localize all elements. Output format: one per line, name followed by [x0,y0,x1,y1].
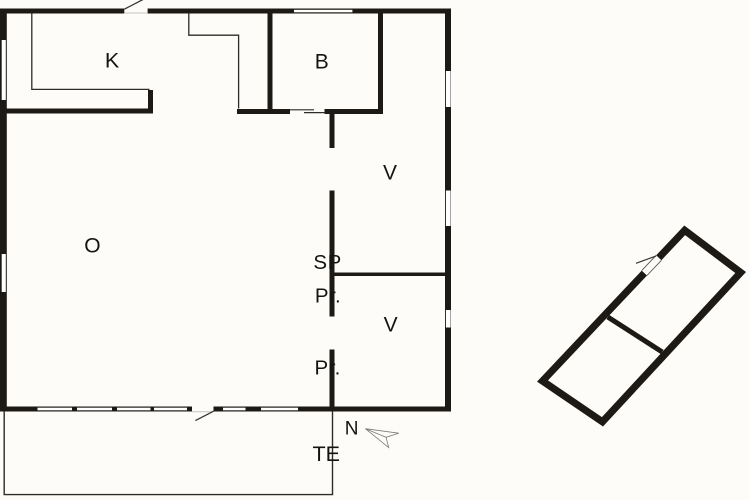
svg-text:N: N [345,418,359,439]
svg-text:V: V [383,161,397,184]
svg-text:K: K [105,49,120,73]
svg-text:V: V [384,313,398,336]
svg-text:Pr.: Pr. [315,284,341,307]
svg-text:B: B [315,50,329,73]
svg-text:TE: TE [313,442,340,466]
svg-text:SP: SP [313,251,342,274]
svg-text:O: O [84,235,100,258]
svg-text:Pr.: Pr. [315,356,341,379]
